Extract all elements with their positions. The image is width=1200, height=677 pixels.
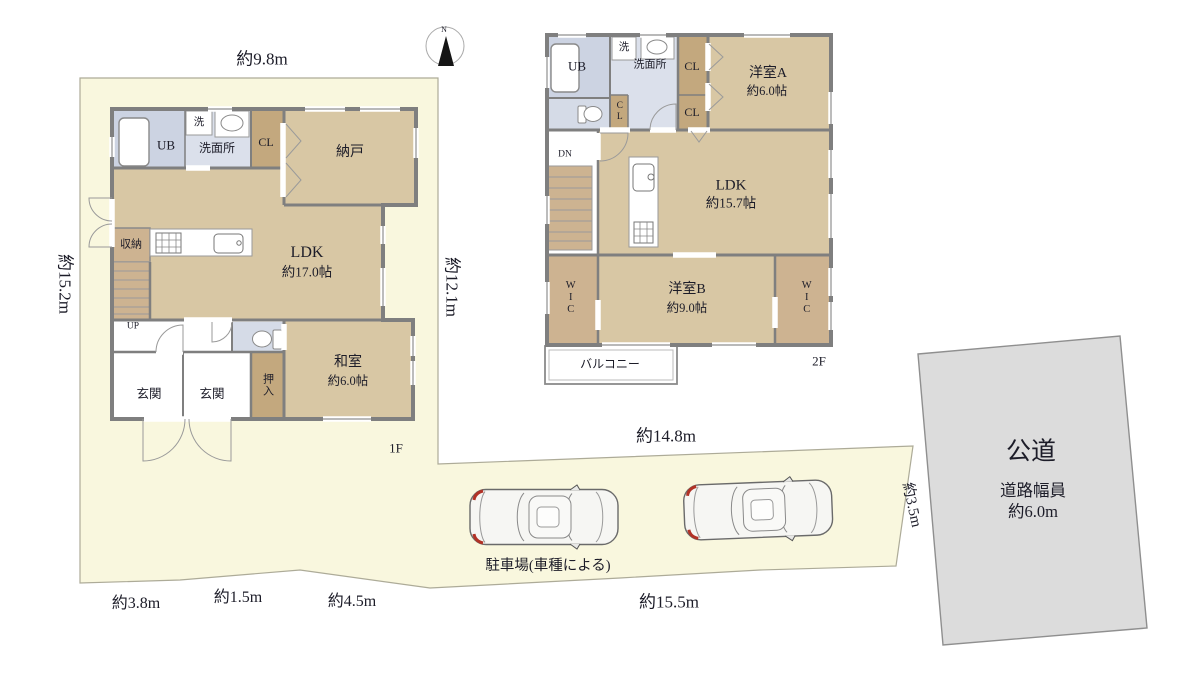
road-width-value: 約6.0m: [1008, 504, 1058, 521]
room-label-washroom-2f: 洗面所: [634, 60, 667, 71]
room-size-ldk-1f: 約17.0帖: [282, 265, 333, 279]
parking-label: 駐車場(車種による): [485, 559, 610, 574]
room-label-yoshitsu-a: 洋室A: [749, 67, 787, 81]
room-label-ldk-2f: LDK: [716, 179, 747, 194]
room-label-laundry-1f: 洗: [194, 118, 205, 129]
room-label-wic-left: WIC: [565, 280, 576, 316]
room-size-yoshitsu-a: 約6.0帖: [747, 85, 788, 98]
dim-road-side: 約3.5m: [899, 481, 923, 529]
room-label-laundry-2f: 洗: [619, 43, 630, 54]
room-label-cl-hall-2f: CL: [614, 101, 624, 123]
dim-top: 約9.8m: [236, 51, 287, 68]
room-size-yoshitsu-b: 約9.0帖: [667, 302, 708, 315]
room-label-yoshitsu-b: 洋室B: [668, 283, 705, 297]
dim-bottom-2: 約1.5m: [214, 590, 262, 606]
balcony-label: バルコニー: [580, 358, 640, 370]
room-label-nando: 納戸: [336, 146, 364, 160]
room-label-cl-a2: CL: [684, 106, 699, 118]
dim-bottom-4: 約15.5m: [639, 594, 699, 611]
compass-north-label: N: [441, 26, 447, 34]
stairs-up-label: UP: [127, 322, 139, 332]
room-label-oshiire: 押入: [262, 373, 273, 397]
room-size-washitsu: 約6.0帖: [328, 375, 369, 388]
labels-layer: N 約9.8m 約15.2m 約12.1m 約14.8m 約3.5m 約3.8m…: [0, 0, 1200, 677]
room-label-shuno: 収納: [120, 240, 142, 251]
dim-right-1f: 約12.1m: [444, 257, 461, 317]
room-label-entrance-1: 玄関: [136, 388, 161, 401]
road-width-title: 道路幅員: [1000, 483, 1066, 500]
room-label-ub-2f: UB: [568, 60, 586, 73]
dim-mid: 約14.8m: [636, 428, 696, 445]
dim-bottom-3: 約4.5m: [328, 594, 376, 610]
floorplan-canvas: N 約9.8m 約15.2m 約12.1m 約14.8m 約3.5m 約3.8m…: [0, 0, 1200, 677]
floor1-tag: 1F: [389, 442, 403, 455]
floor2-tag: 2F: [812, 355, 826, 368]
room-label-washroom-1f: 洗面所: [199, 142, 235, 154]
room-label-ub-1f: UB: [157, 139, 175, 152]
room-label-entrance-2: 玄関: [199, 388, 224, 401]
road-name: 公道: [1006, 440, 1056, 465]
room-label-cl-1f: CL: [258, 136, 273, 148]
room-label-washitsu: 和室: [334, 356, 362, 370]
room-label-cl-a1: CL: [684, 60, 699, 72]
room-label-ldk-1f: LDK: [291, 245, 324, 261]
dim-bottom-1: 約3.8m: [112, 596, 160, 612]
stairs-dn-label: DN: [558, 150, 572, 160]
dim-left: 約15.2m: [57, 254, 74, 314]
room-size-ldk-2f: 約15.7帖: [706, 196, 757, 210]
room-label-wic-right: WIC: [801, 280, 812, 316]
